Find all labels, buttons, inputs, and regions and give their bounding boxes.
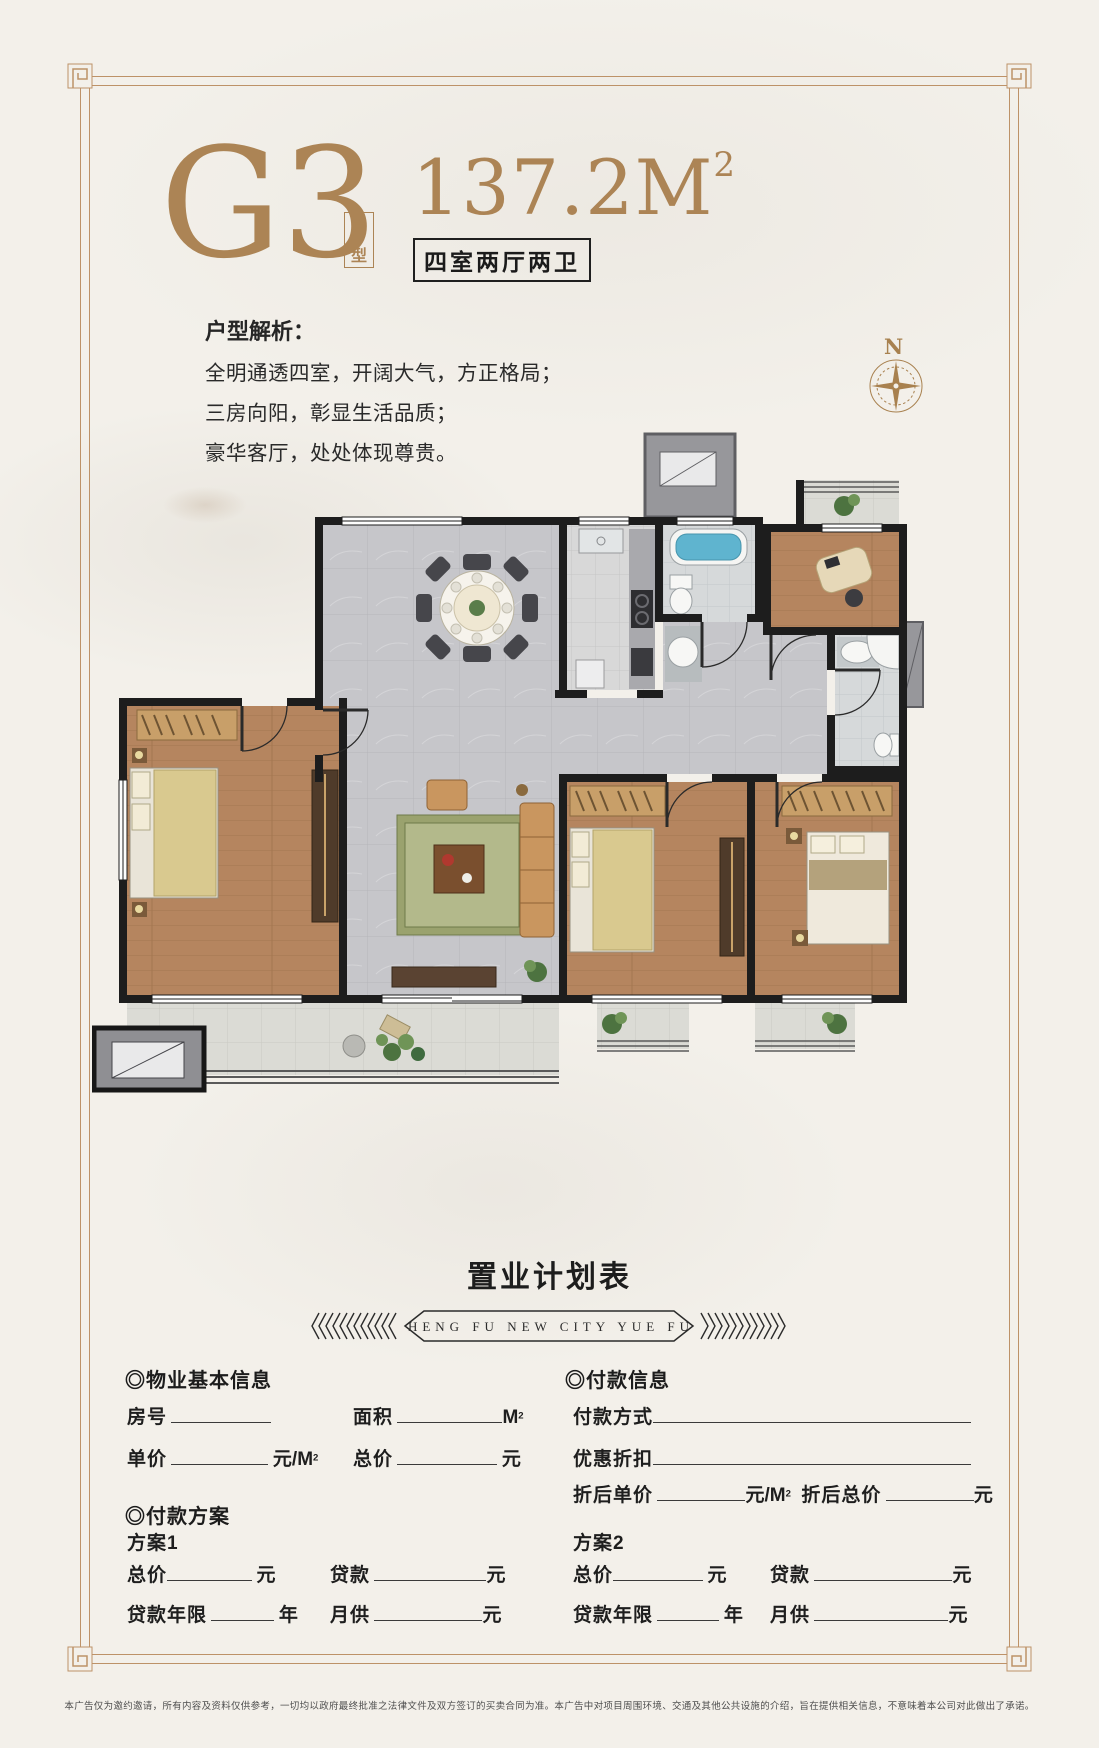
field-room-no: 房号 (127, 1402, 271, 1429)
plan1-label: 方案1 (127, 1528, 179, 1555)
plan1-total: 总价 元 (127, 1560, 275, 1587)
kitchen (567, 525, 655, 690)
blank-line (814, 1603, 948, 1621)
analysis-title: 户型解析： (205, 314, 315, 346)
field-pay-method: 付款方式 (573, 1402, 971, 1429)
floorplan (92, 430, 924, 1100)
blank-line (171, 1447, 268, 1465)
study-room (771, 532, 899, 627)
field-area: 面积 M2 (353, 1402, 524, 1429)
plan2-total: 总价 元 (573, 1560, 726, 1587)
shaft-bottom-left (94, 1028, 204, 1090)
blank-line (653, 1447, 971, 1465)
blank-line (211, 1603, 274, 1621)
area-superscript: 2 (713, 145, 735, 185)
field-discount: 优惠折扣 (573, 1444, 971, 1471)
plan2-loan: 贷款 元 (770, 1560, 971, 1587)
blank-line (171, 1405, 271, 1423)
compass-north-label: N (884, 334, 903, 359)
unit-spec-badge: 四室两厅两卫 (413, 238, 591, 282)
plan2-label: 方案2 (573, 1528, 625, 1555)
blank-line (657, 1603, 719, 1621)
bedroom-2 (567, 782, 747, 995)
balcony-right-1 (597, 1003, 689, 1051)
blank-line (886, 1483, 974, 1501)
compass-icon (868, 358, 924, 419)
blank-line (653, 1405, 971, 1423)
property-info-heading: ◎物业基本信息 (125, 1364, 272, 1393)
blank-line (814, 1563, 952, 1581)
frame-corner-icon (67, 63, 93, 89)
blank-line (397, 1405, 502, 1423)
unit-code-tag: 户型 (344, 212, 374, 268)
field-total-price: 总价 元 (353, 1444, 521, 1471)
payment-info-heading: ◎付款信息 (565, 1364, 670, 1393)
blank-line (374, 1563, 486, 1581)
blank-line (657, 1483, 745, 1501)
banner-left-chevrons-icon (312, 1313, 396, 1339)
top-balcony (796, 480, 899, 524)
frame-corner-icon (1006, 1646, 1032, 1672)
frame-corner-icon (67, 1646, 93, 1672)
field-unit-price: 单价 元/M2 (127, 1444, 318, 1471)
bathroom-2 (835, 635, 899, 766)
blank-line (397, 1447, 497, 1465)
bedroom-1 (127, 706, 339, 995)
field-discounted-prices: 折后单价 元/M2 折后总价 元 (573, 1480, 993, 1507)
plan2-monthly: 月供 元 (770, 1600, 967, 1627)
section-title: 置业计划表 (0, 1252, 1099, 1296)
plan2-loan-years: 贷款年限 年 (573, 1600, 743, 1627)
blank-line (167, 1563, 252, 1581)
blank-line (374, 1603, 482, 1621)
plan1-monthly: 月供 元 (330, 1600, 501, 1627)
banner-text: HENG FU NEW CITY YUE FU (408, 1319, 694, 1334)
plan1-loan-years: 贷款年限 年 (127, 1600, 298, 1627)
shaft-top (645, 434, 735, 517)
blank-line (613, 1563, 703, 1581)
frame-corner-icon (1006, 63, 1032, 89)
balcony-right-2 (755, 1003, 855, 1051)
project-banner: HENG FU NEW CITY YUE FU (309, 1309, 789, 1348)
banner-right-chevrons-icon (701, 1313, 785, 1339)
unit-area: 137.2M2 (412, 148, 735, 226)
flyer-page: G3 户型 137.2M2 四室两厅两卫 户型解析： 全明通透四室，开阔大气，方… (0, 0, 1099, 1748)
payment-plan-heading: ◎付款方案 (125, 1500, 230, 1529)
plan1-loan: 贷款 元 (330, 1560, 505, 1587)
analysis-line: 全明通透四室，开阔大气，方正格局； (205, 356, 562, 386)
disclaimer: 本广告仅为邀约邀请，所有内容及资料仅供参考，一切均以政府最终批准之法律文件及双方… (0, 1698, 1099, 1712)
analysis-line: 三房向阳，彰显生活品质； (205, 396, 457, 426)
